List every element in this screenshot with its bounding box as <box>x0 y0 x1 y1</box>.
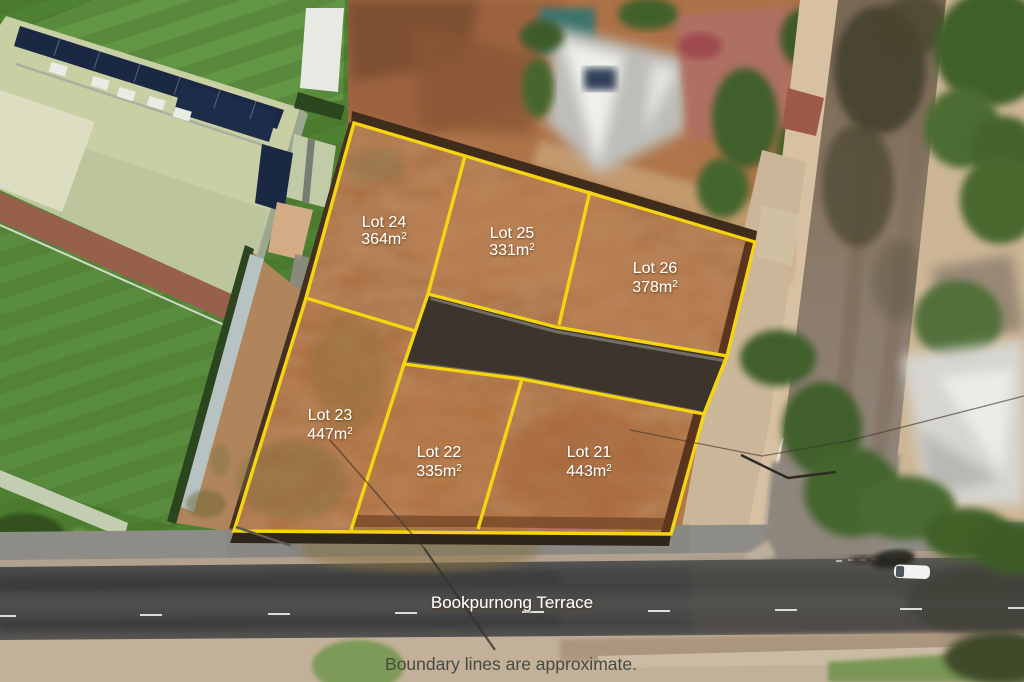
svg-text:Lot 21: Lot 21 <box>567 444 612 461</box>
svg-text:Lot 26: Lot 26 <box>633 260 678 277</box>
svg-text:331m2: 331m2 <box>489 242 535 259</box>
svg-text:447m2: 447m2 <box>307 426 353 443</box>
svg-text:Lot 24: Lot 24 <box>362 214 407 231</box>
svg-text:Lot 22: Lot 22 <box>417 444 462 461</box>
svg-text:Lot 25: Lot 25 <box>490 225 535 242</box>
svg-text:Boundary lines are approximate: Boundary lines are approximate. <box>385 654 637 674</box>
svg-text:378m2: 378m2 <box>632 279 678 296</box>
svg-text:Bookpurnong Terrace: Bookpurnong Terrace <box>431 593 593 612</box>
svg-text:Lot 23: Lot 23 <box>308 407 353 424</box>
svg-text:443m2: 443m2 <box>566 463 612 480</box>
svg-text:364m2: 364m2 <box>361 231 407 248</box>
svg-text:335m2: 335m2 <box>416 463 462 480</box>
